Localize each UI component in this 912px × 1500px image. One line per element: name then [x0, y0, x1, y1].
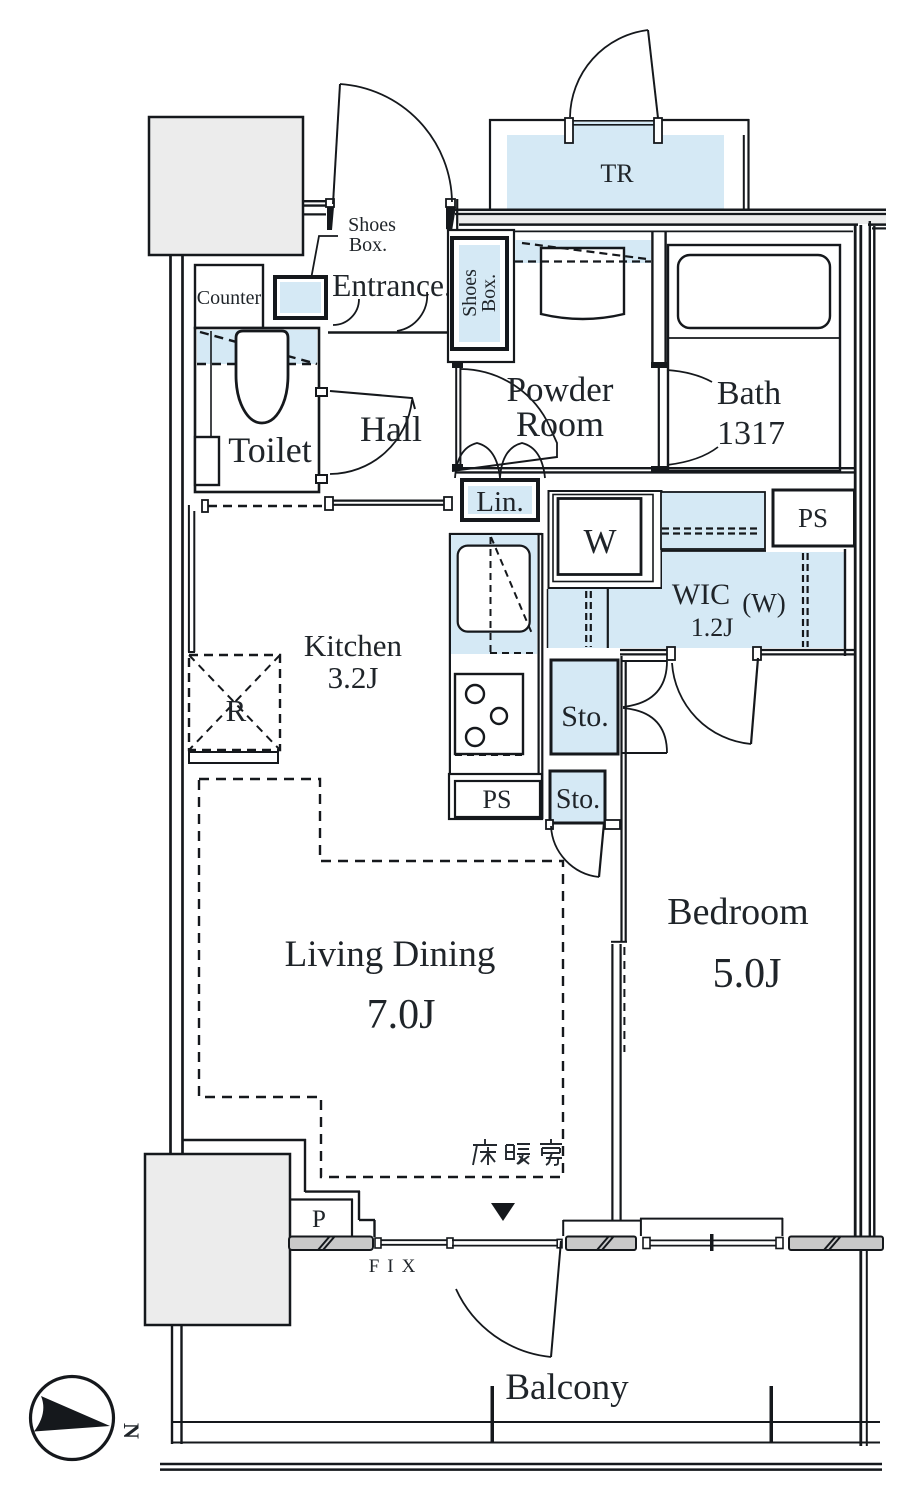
svg-text:Hall: Hall — [360, 409, 422, 449]
svg-text:N: N — [119, 1423, 144, 1439]
svg-text:1317: 1317 — [717, 415, 785, 452]
svg-text:Lin.: Lin. — [476, 486, 524, 518]
svg-text:Entrance.: Entrance. — [332, 268, 452, 303]
svg-text:Sto.: Sto. — [561, 700, 609, 733]
svg-text:W: W — [583, 522, 616, 561]
svg-text:R: R — [226, 693, 247, 728]
svg-text:Bedroom: Bedroom — [667, 891, 808, 933]
svg-text:P: P — [312, 1206, 326, 1233]
svg-text:Toilet: Toilet — [228, 430, 311, 470]
svg-text:Counter: Counter — [197, 287, 262, 309]
svg-text:7.0J: 7.0J — [367, 992, 436, 1038]
svg-text:Box.: Box. — [349, 234, 387, 256]
svg-text:Sto.: Sto. — [556, 784, 600, 815]
svg-text:1.2J: 1.2J — [691, 613, 734, 642]
svg-text:Bath: Bath — [717, 375, 781, 412]
svg-text:Shoes: Shoes — [348, 214, 396, 236]
svg-text:Living Dining: Living Dining — [285, 934, 496, 975]
svg-text:(W): (W) — [742, 588, 785, 618]
svg-text:TR: TR — [600, 159, 634, 188]
svg-text:WIC: WIC — [672, 578, 730, 611]
svg-text:3.2J: 3.2J — [328, 660, 379, 695]
svg-text:Kitchen: Kitchen — [304, 628, 403, 663]
svg-text:5.0J: 5.0J — [713, 951, 782, 997]
svg-text:Room: Room — [516, 404, 604, 444]
svg-text:FIX: FIX — [369, 1256, 424, 1277]
svg-text:PS: PS — [483, 785, 512, 814]
svg-text:Balcony: Balcony — [505, 1367, 629, 1408]
svg-text:ShoesBox.: ShoesBox. — [459, 269, 500, 317]
svg-text:PS: PS — [798, 503, 828, 533]
